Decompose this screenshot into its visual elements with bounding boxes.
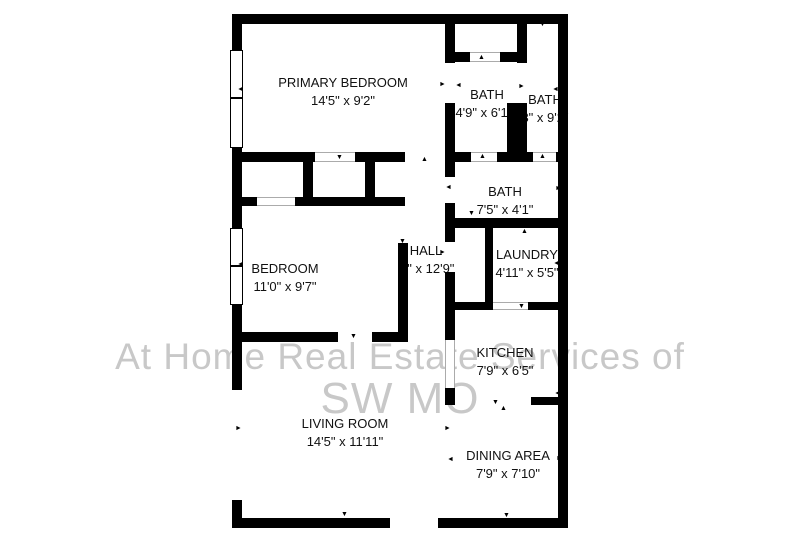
door-marker-icon: ▼ xyxy=(350,333,357,340)
door-marker-icon: ▼ xyxy=(399,238,406,245)
wall xyxy=(355,152,405,162)
room-label-bedroom: BEDROOM11'0" x 9'7" xyxy=(251,260,318,296)
room-name: BATH xyxy=(455,86,518,104)
room-dimensions: 7'9" x 6'5" xyxy=(476,362,533,380)
door-marker-icon: ► xyxy=(235,425,242,432)
door-marker-icon: ► xyxy=(487,258,494,265)
wall xyxy=(445,162,455,177)
wall xyxy=(445,52,470,62)
doorway-opening xyxy=(470,52,500,62)
wall xyxy=(232,14,242,52)
door-marker-icon: ▲ xyxy=(421,156,428,163)
doorway-opening xyxy=(315,152,355,162)
wall xyxy=(558,14,568,528)
wall xyxy=(232,500,242,528)
door-marker-icon: ▼ xyxy=(468,210,475,217)
wall xyxy=(485,228,493,302)
door-marker-icon: ▼ xyxy=(503,512,510,519)
wall xyxy=(232,197,257,206)
watermark-line2: SW MO xyxy=(0,374,800,424)
wall xyxy=(445,302,493,310)
watermark-line1: At Home Real Estate Services of xyxy=(0,336,800,378)
door-marker-icon: ► xyxy=(444,425,451,432)
wall xyxy=(365,162,375,198)
wall xyxy=(528,302,568,310)
door-marker-icon: ▲ xyxy=(521,228,528,235)
door-marker-icon: ▼ xyxy=(539,21,546,28)
wall xyxy=(303,162,313,198)
window-icon xyxy=(230,50,243,148)
wall xyxy=(438,518,568,528)
door-marker-icon: ▼ xyxy=(518,303,525,310)
floor-plan-image: At Home Real Estate Services of SW MO ▼◄… xyxy=(0,0,800,547)
wall xyxy=(232,152,315,162)
room-name: DINING AREA xyxy=(466,447,550,465)
door-marker-icon: ▲ xyxy=(478,54,485,61)
door-marker-icon: ► xyxy=(439,249,446,256)
door-marker-icon: ▲ xyxy=(500,405,507,412)
wall xyxy=(517,14,527,63)
wall xyxy=(531,397,568,405)
door-marker-icon: ► xyxy=(555,185,562,192)
wall xyxy=(232,332,338,342)
door-marker-icon: ◄ xyxy=(237,261,244,268)
door-marker-icon: ◄ xyxy=(445,184,452,191)
room-dimensions: 14'5" x 9'2" xyxy=(278,92,408,110)
door-marker-icon: ▼ xyxy=(336,154,343,161)
wall xyxy=(295,197,405,206)
wall xyxy=(556,152,568,162)
wall xyxy=(372,332,408,342)
door-marker-icon: ▼ xyxy=(492,399,499,406)
doorway-opening xyxy=(257,197,295,206)
room-dimensions: 14'5" x 11'11" xyxy=(302,433,389,451)
wall xyxy=(398,243,408,342)
door-marker-icon: ► xyxy=(556,455,563,462)
wall xyxy=(232,518,390,528)
door-marker-icon: ▲ xyxy=(539,153,546,160)
door-marker-icon: ◄ xyxy=(554,390,561,397)
door-marker-icon: ◄ xyxy=(552,86,559,93)
room-name: LIVING ROOM xyxy=(302,415,389,433)
room-dimensions: 7'9" x 7'10" xyxy=(466,465,550,483)
door-marker-icon: ▲ xyxy=(316,197,323,204)
door-marker-icon: ► xyxy=(439,81,446,88)
wall xyxy=(445,388,455,405)
room-label-bath-hall: BATH7'5" x 4'1" xyxy=(477,183,534,219)
door-marker-icon: ▼ xyxy=(337,19,344,26)
wall xyxy=(445,152,471,162)
room-label-living-room: LIVING ROOM14'5" x 11'11" xyxy=(302,415,389,451)
door-marker-icon: ◄ xyxy=(447,456,454,463)
room-name: PRIMARY BEDROOM xyxy=(278,74,408,92)
door-marker-icon: ► xyxy=(518,83,525,90)
room-dimensions: 4'11" x 5'5" xyxy=(495,264,558,282)
room-label-laundry: LAUNDRY4'11" x 5'5" xyxy=(495,246,558,282)
door-marker-icon: ▲ xyxy=(479,153,486,160)
doorway-opening xyxy=(445,340,455,388)
room-dimensions: 7'5" x 4'1" xyxy=(477,201,534,219)
door-marker-icon: ▼ xyxy=(341,511,348,518)
door-marker-icon: ◄ xyxy=(455,82,462,89)
room-dimensions: 11'0" x 9'7" xyxy=(251,278,318,296)
wall xyxy=(497,152,533,162)
door-marker-icon: ◄ xyxy=(237,86,244,93)
wall xyxy=(445,218,568,228)
room-name: LAUNDRY xyxy=(495,246,558,264)
room-name: BEDROOM xyxy=(251,260,318,278)
window-mullion xyxy=(231,97,242,99)
room-label-dining-area: DINING AREA7'9" x 7'10" xyxy=(466,447,550,483)
door-marker-icon: ◄ xyxy=(553,260,560,267)
room-label-primary-bedroom: PRIMARY BEDROOM14'5" x 9'2" xyxy=(278,74,408,110)
room-label-kitchen: KITCHEN7'9" x 6'5" xyxy=(476,344,533,380)
room-name: BATH xyxy=(477,183,534,201)
wall xyxy=(232,305,242,390)
room-name: KITCHEN xyxy=(476,344,533,362)
